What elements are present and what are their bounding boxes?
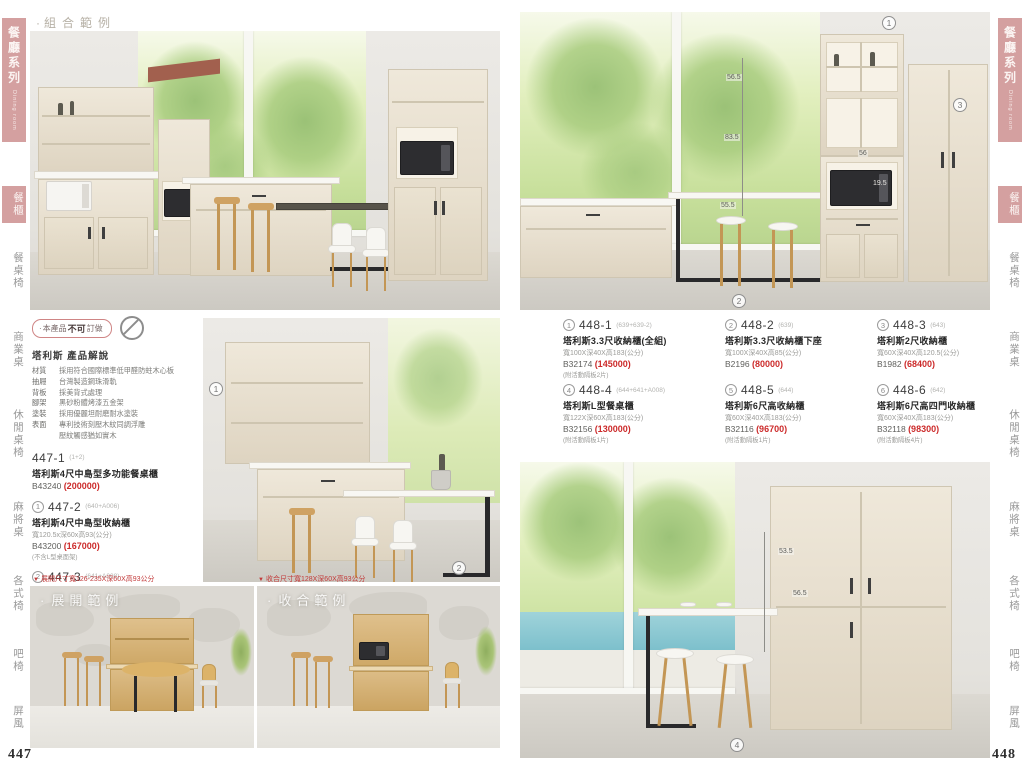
product-marker: 6 xyxy=(877,384,889,396)
chair xyxy=(355,516,375,540)
no-custom-notice: · 本產品 不可 訂做 xyxy=(32,316,206,340)
measurement-label: 56 xyxy=(858,150,868,157)
buffet-hutch xyxy=(38,87,154,173)
table-leg xyxy=(485,497,490,577)
sidebar-item-screens[interactable]: 屏風 xyxy=(2,705,26,730)
microwave xyxy=(830,170,892,206)
sidebar-item-cabinet[interactable]: 餐櫃 xyxy=(998,186,1022,223)
product-entry-448-5: 5 448-5 (644) 塔利斯6尺高收納櫃 寬60X深40X高183(公分)… xyxy=(725,383,877,444)
sidebar-item-bar-stools[interactable]: 吧椅 xyxy=(998,648,1022,673)
island-cabinet xyxy=(520,206,672,278)
product-marker: 2 xyxy=(725,319,737,331)
photo-marker-4: 4 xyxy=(730,738,744,752)
sidebar-left: 餐廳系列 Dining room 餐櫃 餐桌椅 商業桌 休閒桌椅 麻將桌 各式椅… xyxy=(0,0,28,768)
product-marker: 5 xyxy=(725,384,737,396)
prohibited-icon xyxy=(120,316,144,340)
product-grid: 1 448-1 (639+639-2) 塔利斯3.3尺收納櫃(全組) 寬100X… xyxy=(563,318,993,444)
microwave xyxy=(359,642,389,660)
expanded-dimension-caption: ▼展開尺寸寬126-235X深60X高93公分 xyxy=(33,574,155,584)
display-photo-top: 56.5 83.5 55.5 56 19.5 1 3 2 xyxy=(520,12,990,310)
bar-stool xyxy=(289,508,315,515)
table-leg xyxy=(646,616,650,728)
island-cabinet xyxy=(257,469,405,561)
page-number-right: 448 xyxy=(992,747,1016,763)
bar-table-top xyxy=(668,192,840,199)
series-title: 餐廳系列 xyxy=(6,26,23,86)
expanded-example-photo: ·展開範例 xyxy=(30,586,254,748)
sidebar-item-dining-sets[interactable]: 餐桌椅 xyxy=(998,252,1022,290)
bullet-icon: · xyxy=(36,16,42,30)
combo-example-title: ·組合範例 xyxy=(36,14,116,31)
bullet-icon: · xyxy=(39,324,42,333)
photo-marker-1: 1 xyxy=(209,382,223,396)
sidebar-item-cabinet[interactable]: 餐櫃 xyxy=(2,186,26,223)
photo-marker-3: 3 xyxy=(953,98,967,112)
microwave-white xyxy=(46,181,92,211)
product-entry-447-1: 447-1 (1+2) 塔利斯4尺中島型多功能餐桌櫃 B43240 (20000… xyxy=(32,451,206,491)
measurement-label: 56.5 xyxy=(726,74,742,81)
collapsed-dimension-caption: ▼收合尺寸寬128X深60X高93公分 xyxy=(258,574,366,584)
display-photo-bottom: 53.5 56.5 4 xyxy=(520,462,990,758)
fold-out-table-top xyxy=(638,608,778,616)
l-table-top xyxy=(343,490,495,497)
series-title: 餐廳系列 xyxy=(1002,26,1019,86)
island-detail-photo: 1 2 xyxy=(203,318,500,582)
table-leg xyxy=(676,199,680,281)
hutch xyxy=(110,618,194,664)
plant xyxy=(230,628,252,676)
stool xyxy=(716,654,754,665)
island-top xyxy=(182,177,340,184)
sidebar-item-dining-sets[interactable]: 餐桌椅 xyxy=(2,252,26,290)
product-marker: 3 xyxy=(877,319,889,331)
measurement-label: 56.5 xyxy=(792,590,808,597)
measurement-label: 55.5 xyxy=(720,202,736,209)
product-entry-448-1: 1 448-1 (639+639-2) 塔利斯3.3尺收納櫃(全組) 寬100X… xyxy=(563,318,725,379)
extension-table-top xyxy=(276,203,398,210)
tableware xyxy=(680,602,696,607)
island-top xyxy=(520,198,680,206)
collapsed-example-photo: ·收合範例 xyxy=(257,586,500,748)
catalog-spread: 餐廳系列 Dining room 餐櫃 餐桌椅 商業桌 休閒桌椅 麻將桌 各式椅… xyxy=(0,0,1024,768)
sidebar-item-chairs[interactable]: 各式椅 xyxy=(2,575,26,613)
sidebar-item-commercial-tables[interactable]: 商業桌 xyxy=(998,331,1022,369)
product-marker: 1 xyxy=(563,319,575,331)
stool xyxy=(656,648,694,659)
product-marker: 4 xyxy=(563,384,575,396)
counter-top xyxy=(34,171,160,179)
photo-marker-2: 2 xyxy=(732,294,746,308)
bar-stool xyxy=(214,197,240,204)
spec-list: 材質採用符合國際標準低甲醛防蛀木心板 抽屜台灣製造鋼珠滑軌 背板採美背式處理 腳… xyxy=(32,366,206,442)
tableware xyxy=(716,602,732,607)
sidebar-item-screens[interactable]: 屏風 xyxy=(998,705,1022,730)
triangle-down-icon: ▼ xyxy=(258,577,264,583)
island-cabinet xyxy=(190,184,332,276)
measurement-label: 53.5 xyxy=(778,548,794,555)
product-series-title: 塔利斯 產品解說 xyxy=(32,348,206,362)
series-subtitle: Dining room xyxy=(1007,90,1013,131)
combo-example-photo xyxy=(30,31,500,310)
sidebar-item-commercial-tables[interactable]: 商業桌 xyxy=(2,331,26,369)
photo-marker-1: 1 xyxy=(882,16,896,30)
sidebar-item-leisure-sets[interactable]: 休閒桌椅 xyxy=(998,409,1022,459)
series-header: 餐廳系列 Dining room xyxy=(2,18,26,142)
round-table-top xyxy=(122,662,190,677)
page-number-left: 447 xyxy=(8,747,32,763)
sidebar-item-bar-stools[interactable]: 吧椅 xyxy=(2,648,26,673)
product-entry-448-6: 6 448-6 (642) 塔利斯6尺高四門收納櫃 寬60X深40X高183(公… xyxy=(877,383,993,444)
chair xyxy=(332,223,352,247)
photo-marker-2: 2 xyxy=(452,561,466,575)
collapsed-photo-title: ·收合範例 xyxy=(267,590,350,609)
series-subtitle: Dining room xyxy=(11,90,17,131)
product-entry-448-4: 4 448-4 (644+641+A008) 塔利斯L型餐桌櫃 寬122X深60… xyxy=(563,383,725,444)
sidebar-item-chairs[interactable]: 各式椅 xyxy=(998,575,1022,613)
back-cabinet xyxy=(225,342,370,464)
sidebar-item-mahjong-tables[interactable]: 麻將桌 xyxy=(2,501,26,539)
series-header: 餐廳系列 Dining room xyxy=(998,18,1022,142)
expanded-photo-title: ·展開範例 xyxy=(40,590,123,609)
triangle-down-icon: ▼ xyxy=(33,577,39,583)
product-marker: 1 xyxy=(32,501,44,513)
product-entry-448-3: 3 448-3 (643) 塔利斯2尺收納櫃 寬60X深40X高120.5(公分… xyxy=(877,318,993,379)
ice-bucket xyxy=(431,470,451,490)
product-entry-448-2: 2 448-2 (639) 塔利斯3.3尺收納櫃下座 寬100X深40X高85(… xyxy=(725,318,877,379)
measurement-label: 83.5 xyxy=(724,134,740,141)
sidebar-right: 餐廳系列 Dining room 餐櫃 餐桌椅 商業桌 休閒桌椅 麻將桌 各式椅… xyxy=(996,0,1024,768)
bar-stool xyxy=(248,203,274,210)
sidebar-item-mahjong-tables[interactable]: 麻將桌 xyxy=(998,501,1022,539)
sidebar-item-leisure-sets[interactable]: 休閒桌椅 xyxy=(2,409,26,459)
measurement-label: 19.5 xyxy=(872,180,888,187)
chair xyxy=(393,520,413,544)
island-base xyxy=(353,671,429,711)
product-entry-447-2: 1 447-2 (640+A006) 塔利斯4尺中島型收納櫃 寬120.5x深6… xyxy=(32,500,206,561)
plant xyxy=(475,626,497,676)
chair xyxy=(366,227,386,251)
microwave xyxy=(400,141,454,175)
island-top xyxy=(249,462,411,469)
